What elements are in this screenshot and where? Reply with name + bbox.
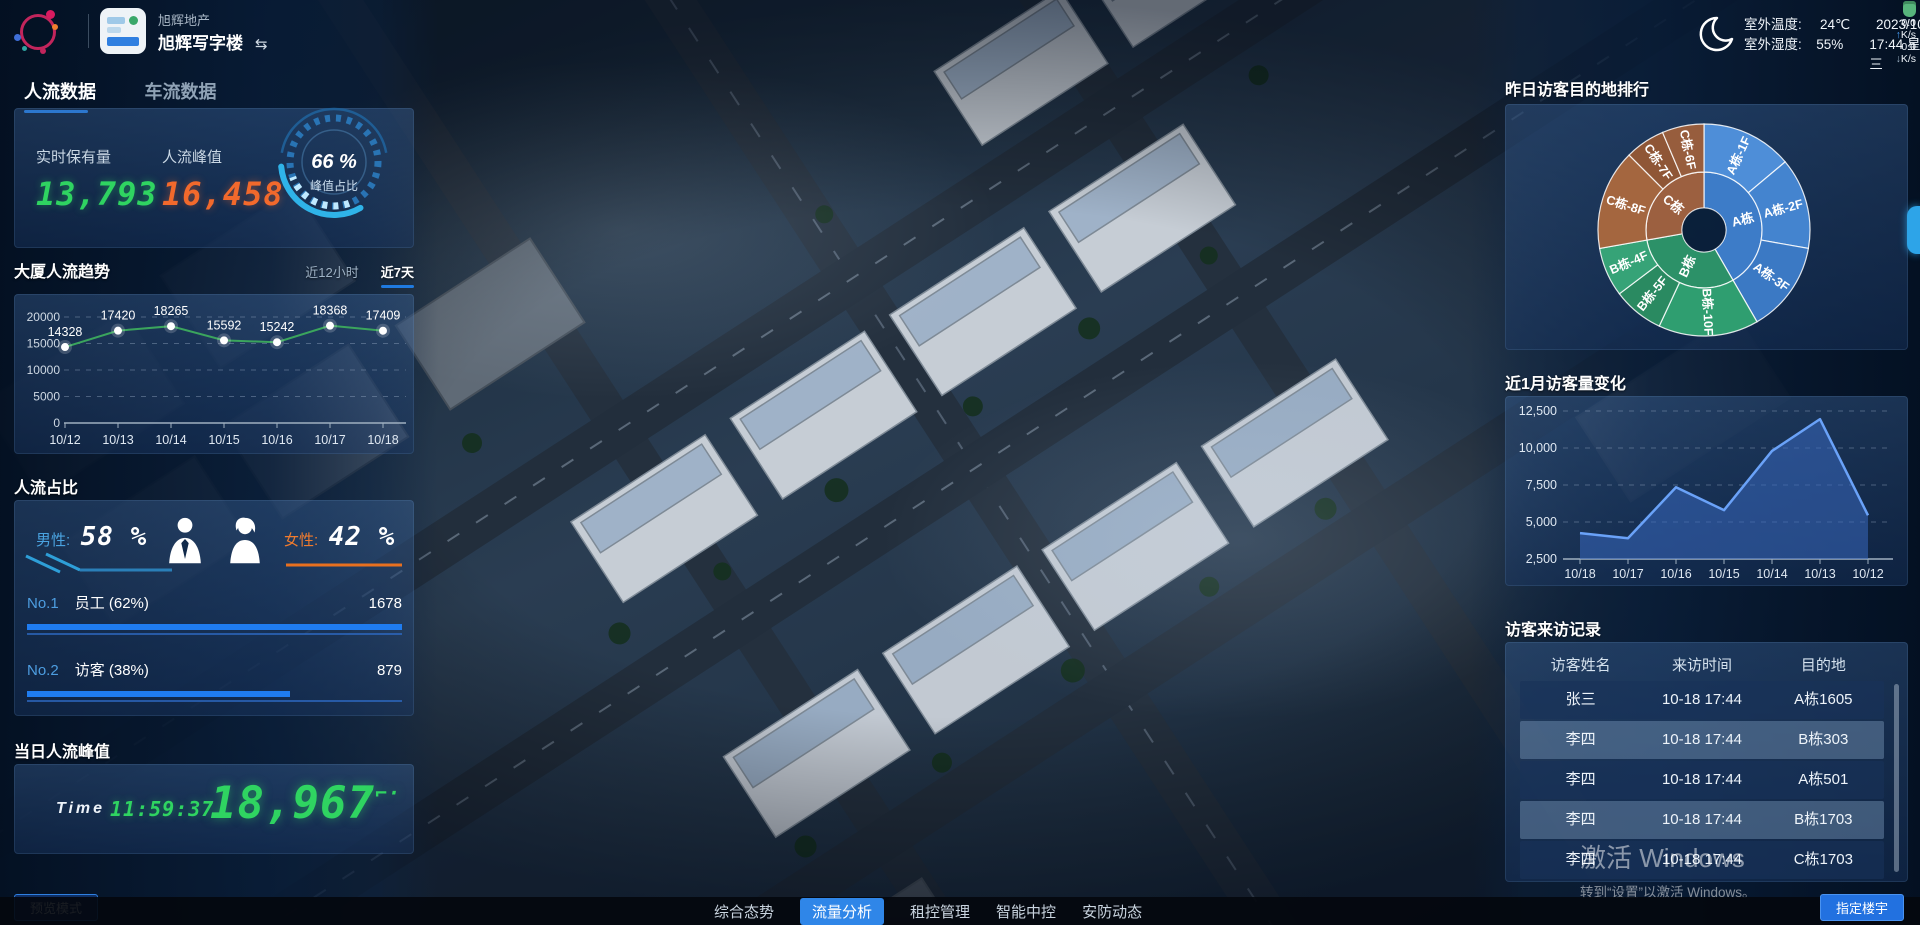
- svg-text:10/14: 10/14: [1756, 567, 1787, 581]
- outdoor-humidity-value: 55%: [1816, 35, 1869, 75]
- table-cell: B栋1703: [1763, 801, 1884, 839]
- svg-text:10/17: 10/17: [1612, 567, 1643, 581]
- table-scrollbar[interactable]: [1894, 684, 1899, 872]
- male-value: 58 %: [81, 522, 148, 552]
- bottom-nav-items: 综合态势流量分析租控管理智能中控安防动态: [714, 897, 1142, 925]
- svg-text:10/15: 10/15: [208, 433, 239, 447]
- male-label: 男性:: [36, 532, 70, 549]
- svg-text:18265: 18265: [154, 304, 189, 318]
- table-col-header: 访客姓名: [1520, 654, 1641, 675]
- bottom-nav-item-3[interactable]: 智能中控: [996, 901, 1056, 922]
- destination-sunburst-card: A栋B栋C栋A栋-1FA栋-2FA栋-3FB栋-10FB栋-5FB栋-4FC栋-…: [1505, 104, 1908, 350]
- svg-text:12,500: 12,500: [1519, 404, 1557, 418]
- table-cell: 李四: [1520, 841, 1641, 879]
- woman-icon: [226, 516, 264, 564]
- bottom-nav-item-2[interactable]: 租控管理: [910, 901, 970, 922]
- app-logo: [12, 8, 58, 54]
- table-cell: 10-18 17:44: [1641, 761, 1762, 799]
- outdoor-temp-label: 室外温度:: [1744, 15, 1820, 35]
- rank-label: 员工 (62%): [75, 592, 149, 613]
- logo-dot: [52, 24, 58, 30]
- svg-text:10/13: 10/13: [1804, 567, 1835, 581]
- daily-peak-title: 当日人流峰值: [14, 738, 110, 762]
- svg-text:10000: 10000: [27, 363, 61, 377]
- gauge-label: 峰值占比: [310, 178, 358, 193]
- tab-vehicle-flow[interactable]: 车流数据: [144, 78, 216, 104]
- svg-text:14328: 14328: [48, 325, 83, 339]
- visitor-table-row: 李四10-18 17:44B栋303: [1520, 721, 1884, 759]
- side-panel-handle[interactable]: [1907, 206, 1920, 254]
- table-cell: 李四: [1520, 721, 1641, 759]
- logo-dot: [22, 46, 27, 51]
- monthly-visitors-chart: 2,5005,0007,50010,00012,50010/1810/1710/…: [1505, 396, 1908, 586]
- rank-value: 1678: [369, 595, 402, 612]
- peak-value-suffix: ⌐·: [375, 781, 401, 805]
- net-down-value: 0.0: [1896, 41, 1916, 53]
- visitor-table-row: 张三10-18 17:44A栋1605: [1520, 681, 1884, 719]
- table-col-header: 来访时间: [1641, 654, 1762, 675]
- retention-value: 13,793: [36, 175, 158, 213]
- daily-peak-card: Time 11:59:37 18,967⌐·: [14, 764, 414, 854]
- table-cell: C栋1703: [1763, 841, 1884, 879]
- svg-text:10,000: 10,000: [1519, 441, 1557, 455]
- bottom-nav-item-4[interactable]: 安防动态: [1082, 901, 1142, 922]
- svg-text:10/16: 10/16: [1660, 567, 1691, 581]
- gauge-value: 66 %: [311, 151, 357, 173]
- building-icon: [100, 8, 146, 54]
- moon-icon: [1692, 13, 1734, 55]
- table-cell: 10-18 17:44: [1641, 681, 1762, 719]
- visitor-records-title: 访客来访记录: [1505, 616, 1601, 640]
- svg-text:17409: 17409: [366, 309, 401, 323]
- rank-row-1: No.1 员工 (62%) 1678: [27, 592, 402, 635]
- bottom-nav-item-1[interactable]: 流量分析: [800, 898, 884, 925]
- male-decoration-line: [24, 552, 174, 578]
- svg-text:2,500: 2,500: [1526, 552, 1557, 566]
- svg-text:17420: 17420: [101, 309, 136, 323]
- peak-value: 16,458: [162, 175, 284, 213]
- svg-text:15592: 15592: [207, 318, 242, 332]
- net-up-unit: K/s: [1901, 29, 1916, 41]
- assign-building-button[interactable]: 指定楼宇: [1820, 894, 1904, 921]
- destination-sunburst-chart: A栋B栋C栋A栋-1FA栋-2FA栋-3FB栋-10FB栋-5FB栋-4FC栋-…: [1505, 104, 1908, 350]
- visitor-table-row: 李四10-18 17:44A栋501: [1520, 761, 1884, 799]
- net-up-value: 0.0: [1896, 17, 1916, 29]
- logo-dot: [46, 10, 55, 19]
- svg-text:10/12: 10/12: [49, 433, 80, 447]
- retention-label: 实时保有量: [36, 149, 111, 166]
- svg-text:10/17: 10/17: [314, 433, 345, 447]
- trend-title: 大厦人流趋势: [14, 258, 110, 282]
- header-divider: [88, 14, 89, 48]
- rank-label: 访客 (38%): [75, 659, 149, 680]
- dashboard-root: 旭辉地产 旭辉写字楼⇆ 室外温度: 24℃ 2023/10/18 室外湿度: 5…: [0, 0, 1920, 925]
- switch-building-icon[interactable]: ⇆: [255, 36, 268, 53]
- visitor-table-header: 访客姓名来访时间目的地: [1520, 654, 1884, 675]
- table-col-header: 目的地: [1763, 654, 1884, 675]
- outdoor-humidity-label: 室外湿度:: [1744, 35, 1816, 75]
- peak-time-value: 11:59:37: [110, 797, 214, 821]
- visitor-records-card: 访客姓名来访时间目的地 张三10-18 17:44A栋1605李四10-18 1…: [1505, 642, 1908, 882]
- peak-label: 人流峰值: [162, 149, 222, 166]
- bottom-nav-bar: 综合态势流量分析租控管理智能中控安防动态: [0, 897, 1920, 925]
- logo-dot: [40, 48, 46, 54]
- svg-text:10/13: 10/13: [102, 433, 133, 447]
- svg-text:10/18: 10/18: [367, 433, 398, 447]
- rank-bar: [27, 691, 402, 697]
- table-cell: B栋303: [1763, 721, 1884, 759]
- table-cell: A栋1605: [1763, 681, 1884, 719]
- ratio-title: 人流占比: [14, 474, 78, 498]
- monthly-visitors-card: 2,5005,0007,50010,00012,50010/1810/1710/…: [1505, 396, 1908, 586]
- destination-rank-title: 昨日访客目的地排行: [1505, 76, 1649, 100]
- peak-time-label: Time: [56, 800, 105, 818]
- table-cell: 李四: [1520, 801, 1641, 839]
- female-decoration-line: [284, 560, 406, 570]
- rank-value: 879: [377, 662, 402, 679]
- rank-row-2: No.2 访客 (38%) 879: [27, 659, 402, 702]
- network-speed-overlay: 0.0 ↑K/s 0.0 ↓K/s: [1896, 1, 1916, 65]
- rank-number: No.1: [27, 595, 59, 612]
- svg-text:20000: 20000: [27, 310, 61, 324]
- sunburst-label: B栋-10F: [1700, 288, 1717, 336]
- net-down-unit: K/s: [1901, 53, 1916, 65]
- visitor-table-row: 李四10-18 17:44B栋1703: [1520, 801, 1884, 839]
- flow-rank-list: No.1 员工 (62%) 1678 No.2 访客 (38%) 879: [27, 592, 402, 726]
- table-cell: 张三: [1520, 681, 1641, 719]
- svg-text:10/18: 10/18: [1564, 567, 1595, 581]
- female-value: 42 %: [329, 522, 396, 552]
- svg-text:7,500: 7,500: [1526, 478, 1557, 492]
- logo-ring-icon: [20, 14, 56, 50]
- svg-text:10/15: 10/15: [1708, 567, 1739, 581]
- people-flow-trend-chart: 0500010000150002000010/1210/1310/1410/15…: [14, 294, 414, 454]
- trend-section-header: 大厦人流趋势 近12小时 近7天: [14, 258, 414, 288]
- range-7d-tab[interactable]: 近7天: [381, 262, 414, 288]
- peak-ratio-gauge: 66 % 峰值占比: [270, 98, 398, 236]
- realtime-stats-card: 实时保有量 13,793 人流峰值 16,458 66 % 峰值占比: [14, 108, 414, 248]
- table-cell: A栋501: [1763, 761, 1884, 799]
- company-name: 旭辉地产: [158, 10, 210, 29]
- range-12h-tab[interactable]: 近12小时: [305, 262, 358, 281]
- net-monitor-icon: [1903, 1, 1916, 17]
- weather-widget: 室外温度: 24℃ 2023/10/18 室外湿度: 55% 17:44 星期三: [1744, 15, 1920, 75]
- logo-dot: [14, 34, 21, 41]
- rank-bar-track: [27, 700, 402, 702]
- building-name: 旭辉写字楼: [158, 34, 243, 53]
- man-icon: [166, 516, 204, 564]
- rank-bar: [27, 624, 402, 630]
- svg-text:10/16: 10/16: [261, 433, 292, 447]
- table-cell: 10-18 17:44: [1641, 721, 1762, 759]
- table-cell: 李四: [1520, 761, 1641, 799]
- people-flow-trend-card: 0500010000150002000010/1210/1310/1410/15…: [14, 294, 414, 454]
- svg-text:10/14: 10/14: [155, 433, 186, 447]
- svg-text:0: 0: [53, 416, 60, 430]
- svg-text:18368: 18368: [313, 304, 348, 318]
- people-ratio-card: 男性: 58 % 女性: 42 % No.1 员工 (62%): [14, 500, 414, 716]
- monthly-visitors-title: 近1月访客量变化: [1505, 370, 1626, 394]
- svg-text:5,000: 5,000: [1526, 515, 1557, 529]
- visitor-table-row: 李四10-18 17:44C栋1703: [1520, 841, 1884, 879]
- outdoor-temp-value: 24℃: [1820, 15, 1876, 35]
- table-cell: 10-18 17:44: [1641, 841, 1762, 879]
- rank-bar-track: [27, 633, 402, 635]
- svg-text:5000: 5000: [33, 390, 60, 404]
- svg-text:10/12: 10/12: [1852, 567, 1883, 581]
- visitor-table-body: 张三10-18 17:44A栋1605李四10-18 17:44B栋303李四1…: [1505, 681, 1908, 879]
- table-cell: 10-18 17:44: [1641, 801, 1762, 839]
- daily-peak-value: 18,967⌐·: [210, 778, 401, 829]
- rank-number: No.2: [27, 662, 59, 679]
- female-label: 女性:: [284, 532, 318, 549]
- bottom-nav-item-0[interactable]: 综合态势: [714, 901, 774, 922]
- svg-text:15242: 15242: [260, 320, 295, 334]
